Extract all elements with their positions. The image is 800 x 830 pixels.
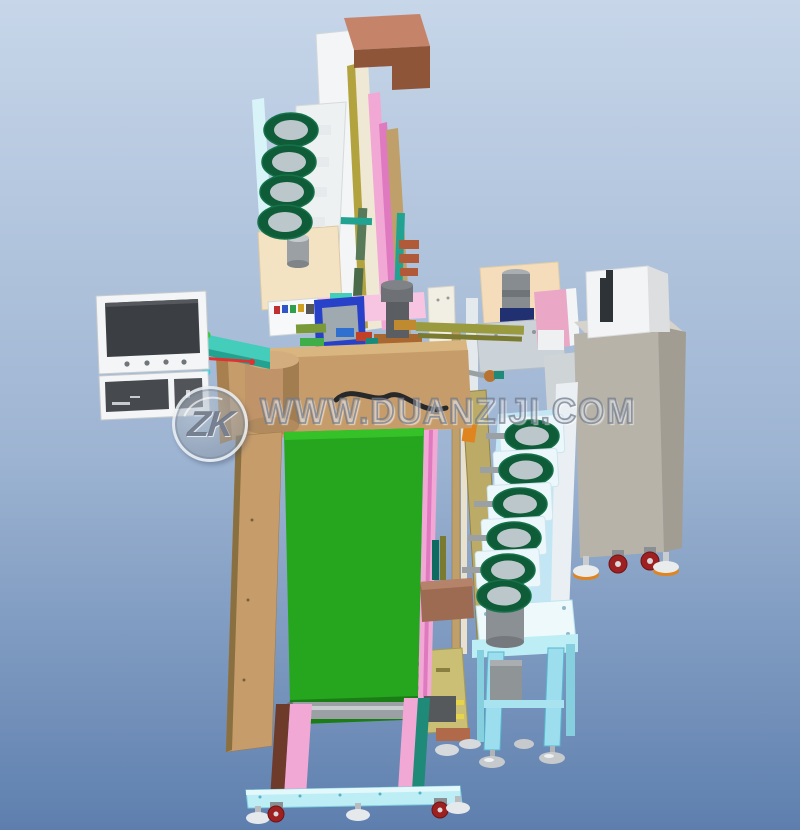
bowl-feeder xyxy=(477,580,531,612)
cabinet-top-box xyxy=(586,266,670,338)
leveling-foot xyxy=(573,556,599,580)
caster-wheel xyxy=(432,798,448,818)
cad-scene: ZK WWW.DUANZIJI.COM xyxy=(0,0,800,830)
suction-foot xyxy=(246,806,270,824)
monitor-tray xyxy=(99,371,210,420)
belt-conveyor xyxy=(226,428,481,824)
cabinet-slot xyxy=(600,278,613,322)
control-cabinet xyxy=(573,266,686,580)
machine-render xyxy=(0,0,800,830)
suction-foot xyxy=(539,746,565,764)
bowl-feeder-stack-left xyxy=(258,102,346,310)
monitor-screen xyxy=(105,299,200,357)
suction-foot xyxy=(479,750,505,768)
bowl-feeder-column-right xyxy=(462,382,578,768)
caster-wheel xyxy=(268,802,284,822)
conveyor-belt xyxy=(284,428,424,702)
